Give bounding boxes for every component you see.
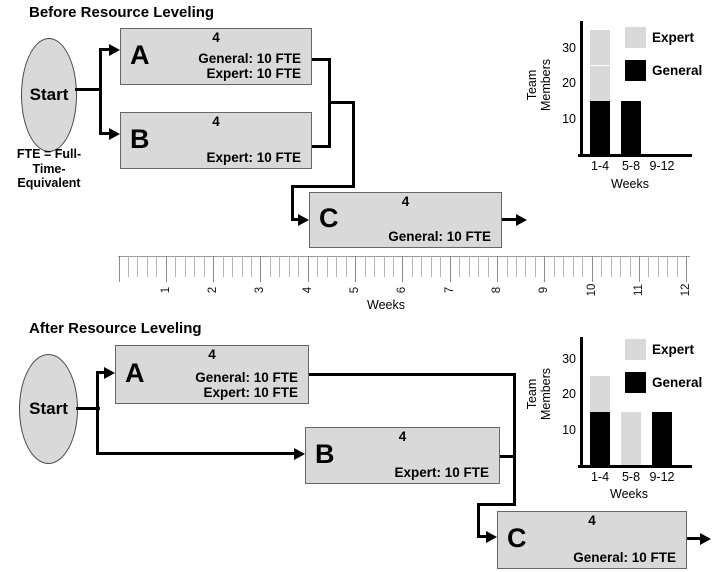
ruler-minor-tick [175,256,176,277]
ruler-minor-tick [620,256,621,277]
after-task-a: A 4 General: 10 FTE Expert: 10 FTE [115,345,309,404]
y-axis [580,337,583,468]
ruler-minor-tick [601,256,602,277]
before-c-exit-arrow-icon [516,214,527,226]
before-start-connector [75,88,100,91]
after-section-title: After Resource Leveling [29,320,202,337]
after-start-node: Start [19,354,78,464]
task-duration: 4 [310,194,501,209]
chart-ylabel: TeamMembers [525,365,553,423]
before-to-a-arrow-icon [109,44,120,56]
ruler-minor-tick [365,256,366,277]
week-tick-label: 10 [586,278,598,302]
legend-swatch-general [625,372,646,393]
after-task-c: C 4 General: 10 FTE [497,511,687,569]
after-b-exit-line [498,455,516,458]
x-axis [578,465,692,468]
week-tick-label: 9 [538,278,550,302]
ruler-minor-tick [440,256,441,277]
ruler-major-tick [119,256,120,282]
ruler-minor-tick [374,256,375,277]
ruler-minor-tick [289,256,290,277]
category-label: 9-12 [637,159,687,173]
bar-segment-general [590,412,610,465]
ruler-minor-tick [488,256,489,277]
after-a-exit-line [307,373,516,376]
ruler-minor-tick [279,256,280,277]
legend-label: Expert [652,339,694,360]
chart-xlabel: Weeks [589,487,669,501]
ruler-minor-tick [128,256,129,277]
ruler-minor-tick [421,256,422,277]
ruler-minor-tick [336,256,337,277]
before-task-b: B 4 Expert: 10 FTE [120,112,312,169]
week-tick-label: 3 [254,278,266,302]
task-resources: Expert: 10 FTE [206,150,301,165]
after-branch-line [96,371,99,455]
task-duration: 4 [116,347,308,362]
ruler-minor-tick [412,256,413,277]
fte-definition-note: FTE = Full- Time- Equivalent [0,147,98,191]
ruler-minor-tick [204,256,205,277]
bar-segment-expert [590,30,610,66]
before-start-label: Start [30,85,69,105]
before-to-c-arrow-icon [298,214,309,226]
ruler-minor-tick [648,256,649,277]
week-tick-label: 1 [160,278,172,302]
ruler-minor-tick [677,256,678,277]
after-c-drop-line [477,503,480,538]
ruler-minor-tick [384,256,385,277]
ruler-minor-tick [469,256,470,277]
ruler-axis-label: Weeks [346,298,426,312]
bar-segment-expert [590,376,610,412]
ruler-minor-tick [554,256,555,277]
ruler-minor-tick [667,256,668,277]
ruler-minor-tick [298,256,299,277]
task-duration: 4 [121,114,311,129]
bar-segment-general [652,412,672,465]
ytick-label: 30 [546,41,576,55]
ruler-minor-tick [582,256,583,277]
bar-segment-general [590,101,610,154]
ruler-minor-tick [431,256,432,277]
x-axis [578,154,692,157]
task-resources: General: 10 FTE [573,550,676,565]
y-axis [580,21,583,157]
chart-ylabel: TeamMembers [525,56,553,114]
ruler-minor-tick [478,256,479,277]
bar-segment-expert [590,65,610,101]
before-join-mid-line [328,101,355,104]
legend-label: Expert [652,27,694,48]
ruler-minor-tick [185,256,186,277]
ruler-minor-tick [658,256,659,277]
ruler-minor-tick [251,256,252,277]
after-task-b: B 4 Expert: 10 FTE [305,427,500,484]
after-to-b-line [96,452,295,455]
week-tick-label: 2 [207,278,219,302]
before-branch-line [99,48,102,135]
legend-swatch-expert [625,27,646,48]
week-tick-label: 11 [633,278,645,302]
task-duration: 4 [306,429,499,444]
legend-label: General [652,60,702,81]
after-c-exit-arrow-icon [700,533,711,545]
after-to-c-arrow-icon [486,531,497,543]
ruler-minor-tick [573,256,574,277]
ruler-minor-tick [516,256,517,277]
week-tick-label: 8 [491,278,503,302]
ruler-minor-tick [525,256,526,277]
task-letter: A [125,357,145,388]
ruler-minor-tick [270,256,271,277]
after-join-down-line [513,373,516,506]
ruler-minor-tick [630,256,631,277]
task-resources: Expert: 10 FTE [394,465,489,480]
after-c-exit-line [685,537,701,540]
ruler-minor-tick [317,256,318,277]
ruler-minor-tick [611,256,612,277]
before-c-exit-line [500,218,517,221]
after-to-a-arrow-icon [104,367,115,379]
before-start-node: Start [21,38,77,152]
chart-xlabel: Weeks [590,177,670,191]
ruler-minor-tick [459,256,460,277]
ruler-minor-tick [346,256,347,277]
legend-swatch-general [625,60,646,81]
before-task-a: A 4 General: 10 FTE Expert: 10 FTE [120,28,312,85]
ruler-minor-tick [156,256,157,277]
after-join-back-line [477,503,516,506]
ruler-minor-tick [327,256,328,277]
before-join-down-line [352,101,355,188]
legend-label: General [652,372,702,393]
ruler-minor-tick [393,256,394,277]
after-to-b-arrow-icon [294,448,305,460]
before-task-c: C 4 General: 10 FTE [309,192,502,248]
week-tick-label: 7 [444,278,456,302]
resource-leveling-figure: Before Resource Leveling Start FTE = Ful… [0,0,717,572]
before-c-drop-line [291,185,294,220]
ruler-minor-tick [137,256,138,277]
ruler-minor-tick [535,256,536,277]
task-resources: General: 10 FTE Expert: 10 FTE [195,370,298,400]
ruler-minor-tick [242,256,243,277]
before-join-back-line [291,185,355,188]
legend-swatch-expert [625,339,646,360]
bar-segment-general [621,101,641,154]
task-duration: 4 [498,513,686,528]
week-tick-label: 12 [680,278,692,302]
before-to-b-arrow-icon [109,128,120,140]
ruler-minor-tick [147,256,148,277]
task-duration: 4 [121,30,311,45]
ruler-minor-tick [194,256,195,277]
ruler-minor-tick [223,256,224,277]
ytick-label: 10 [546,423,576,437]
ruler-minor-tick [232,256,233,277]
ruler-minor-tick [507,256,508,277]
ytick-label: 30 [546,352,576,366]
task-resources: General: 10 FTE Expert: 10 FTE [198,51,301,81]
ruler-minor-tick [563,256,564,277]
task-resources: General: 10 FTE [388,229,491,244]
category-label: 9-12 [637,470,687,484]
bar-segment-expert [621,412,641,465]
after-start-label: Start [29,399,68,419]
week-tick-label: 4 [302,278,314,302]
before-section-title: Before Resource Leveling [29,4,214,21]
